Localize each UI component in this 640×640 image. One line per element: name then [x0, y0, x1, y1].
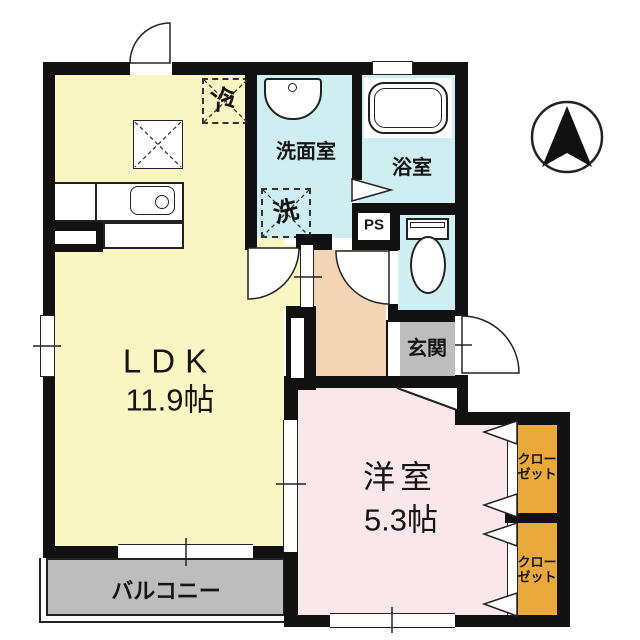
- ldk-balcony-window: [118, 544, 253, 559]
- room-western-right: [463, 424, 507, 616]
- service-door-swing: [130, 23, 170, 63]
- bathtub-inner: [374, 88, 442, 128]
- bathroom-label: 浴室: [392, 157, 432, 179]
- entrance-doorway-gap: [455, 316, 468, 375]
- room-ldk-vestibule: [245, 245, 302, 310]
- kitchen-counter-lower: [103, 222, 184, 249]
- western-window: [330, 613, 455, 628]
- western-room-size-label: 5.3帖: [364, 504, 438, 539]
- bathroom-window: [372, 61, 413, 75]
- ldk-hall-opening: [300, 245, 314, 307]
- toilet-tank-lid: [410, 222, 445, 228]
- washroom-label: 洗面室: [276, 141, 336, 163]
- north-compass-icon: [532, 102, 602, 172]
- floor-plan: LDK 11.9帖 洋室 5.3帖 洗面室 浴室 玄関 バルコニー PS 冷 洗…: [0, 0, 640, 640]
- ldk-western-opening: [283, 420, 298, 552]
- ldk-label: LDK: [123, 344, 217, 381]
- closet-lower-label: クロー ゼット: [517, 555, 556, 584]
- ldk-size-label: 11.9帖: [125, 384, 214, 419]
- washbasin-faucet-icon: [288, 83, 297, 92]
- kitchen-wall-block-inset: [50, 231, 96, 244]
- closet-upper-label: クロー ゼット: [517, 452, 556, 481]
- service-door-gap: [130, 62, 172, 75]
- kitchen-faucet-icon: [155, 195, 169, 209]
- room-western: [298, 386, 463, 616]
- balcony-label: バルコニー: [111, 580, 221, 605]
- kitchen-counter-divider: [95, 182, 97, 222]
- pipe-space-label: PS: [364, 218, 384, 235]
- entrance-door-swing: [462, 316, 519, 373]
- ldk-side-window: [40, 315, 55, 377]
- toilet-bowl-icon: [410, 236, 446, 294]
- western-room-label: 洋室: [363, 460, 437, 496]
- kitchen-cupboard: [133, 120, 183, 169]
- entrance-label: 玄関: [407, 338, 447, 360]
